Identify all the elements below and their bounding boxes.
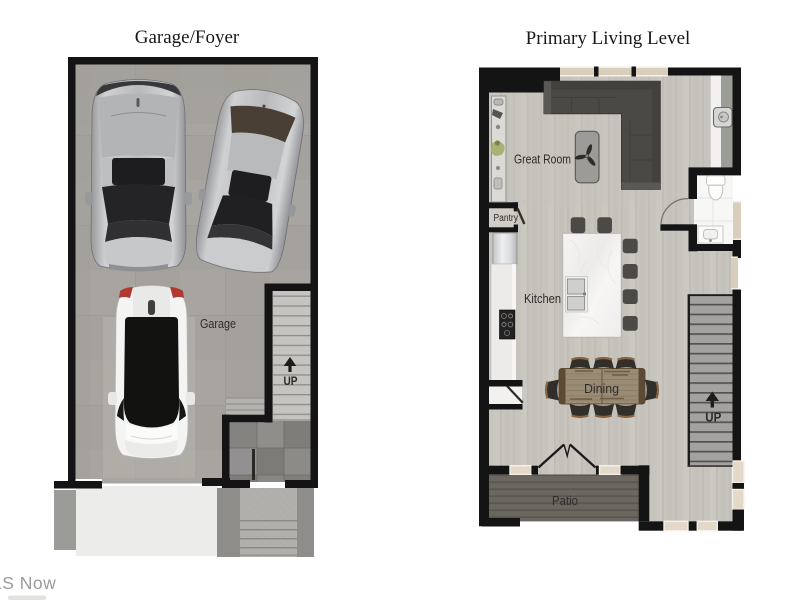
svg-text:Pantry: Pantry <box>494 213 519 224</box>
svg-text:Garage: Garage <box>200 316 236 331</box>
svg-text:UP: UP <box>284 376 298 388</box>
svg-text:Primary Living Level: Primary Living Level <box>526 28 691 49</box>
svg-text:Kitchen: Kitchen <box>524 291 561 306</box>
svg-text:Garage/Foyer: Garage/Foyer <box>135 27 240 48</box>
svg-text:UP: UP <box>705 411 721 425</box>
svg-text:LS Now: LS Now <box>0 573 56 593</box>
svg-text:Patio: Patio <box>552 493 578 508</box>
svg-text:Dining: Dining <box>584 381 619 396</box>
svg-text:Great Room: Great Room <box>514 152 571 167</box>
